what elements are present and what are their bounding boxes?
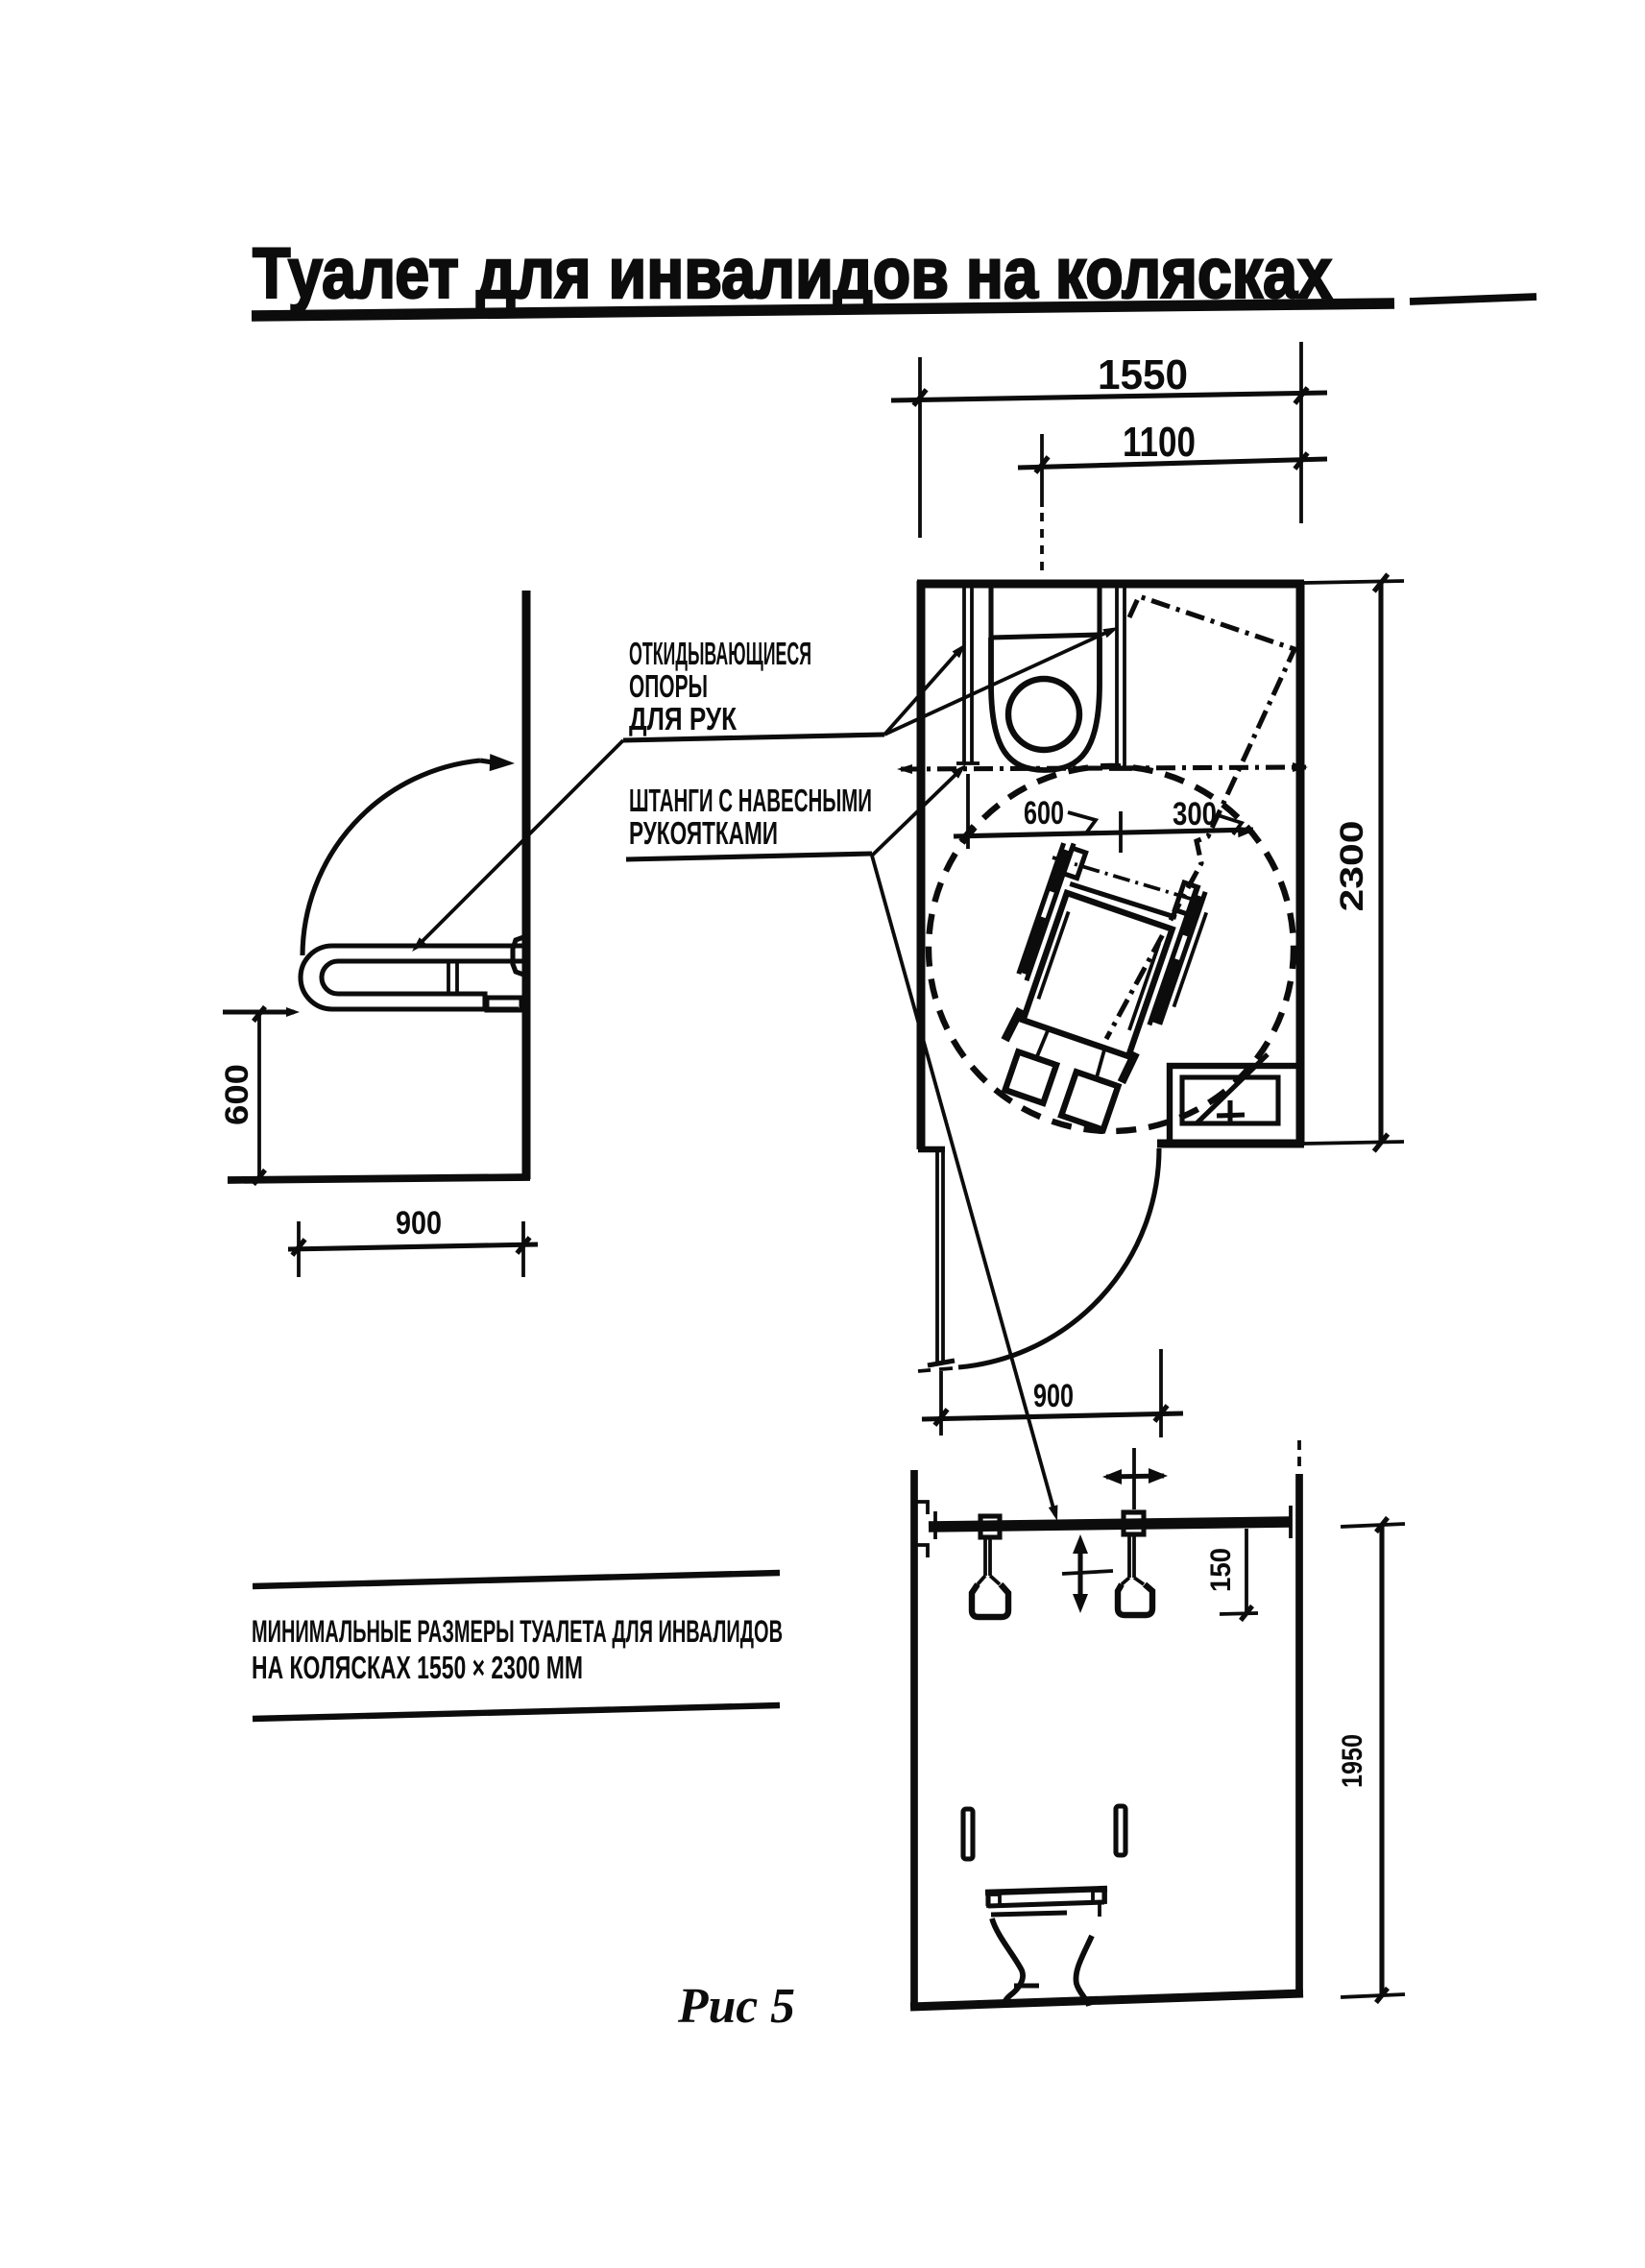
svg-text:ШТАНГИ С НАВЕСНЫМИ: ШТАНГИ С НАВЕСНЫМИ xyxy=(629,783,872,818)
svg-text:600: 600 xyxy=(1024,795,1064,832)
svg-text:1550: 1550 xyxy=(1098,351,1188,398)
svg-text:2300: 2300 xyxy=(1334,821,1370,912)
svg-text:РУКОЯТКАМИ: РУКОЯТКАМИ xyxy=(629,815,778,851)
svg-text:ОПОРЫ: ОПОРЫ xyxy=(629,668,708,704)
svg-text:600: 600 xyxy=(219,1064,255,1125)
svg-text:300: 300 xyxy=(1173,796,1217,832)
svg-text:ОТКИДЫВАЮЩИЕСЯ: ОТКИДЫВАЮЩИЕСЯ xyxy=(629,636,811,671)
svg-text:МИНИМАЛЬНЫЕ РАЗМЕРЫ ТУАЛЕТА: МИНИМАЛЬНЫЕ РАЗМЕРЫ ТУАЛЕТА ДЛЯ ИНВАЛИДО… xyxy=(252,1614,783,1649)
svg-text:НА КОЛЯСКАХ 1550 × 2300: НА КОЛЯСКАХ 1550 × 2300 ММ xyxy=(252,1650,583,1685)
svg-text:1100: 1100 xyxy=(1123,419,1196,466)
svg-text:Рис 5: Рис 5 xyxy=(677,1979,795,2034)
svg-text:ДЛЯ РУК: ДЛЯ РУК xyxy=(629,701,738,736)
svg-text:150: 150 xyxy=(1205,1548,1237,1592)
svg-text:900: 900 xyxy=(1033,1378,1074,1414)
svg-text:900: 900 xyxy=(396,1205,442,1242)
svg-text:1950: 1950 xyxy=(1337,1734,1368,1788)
